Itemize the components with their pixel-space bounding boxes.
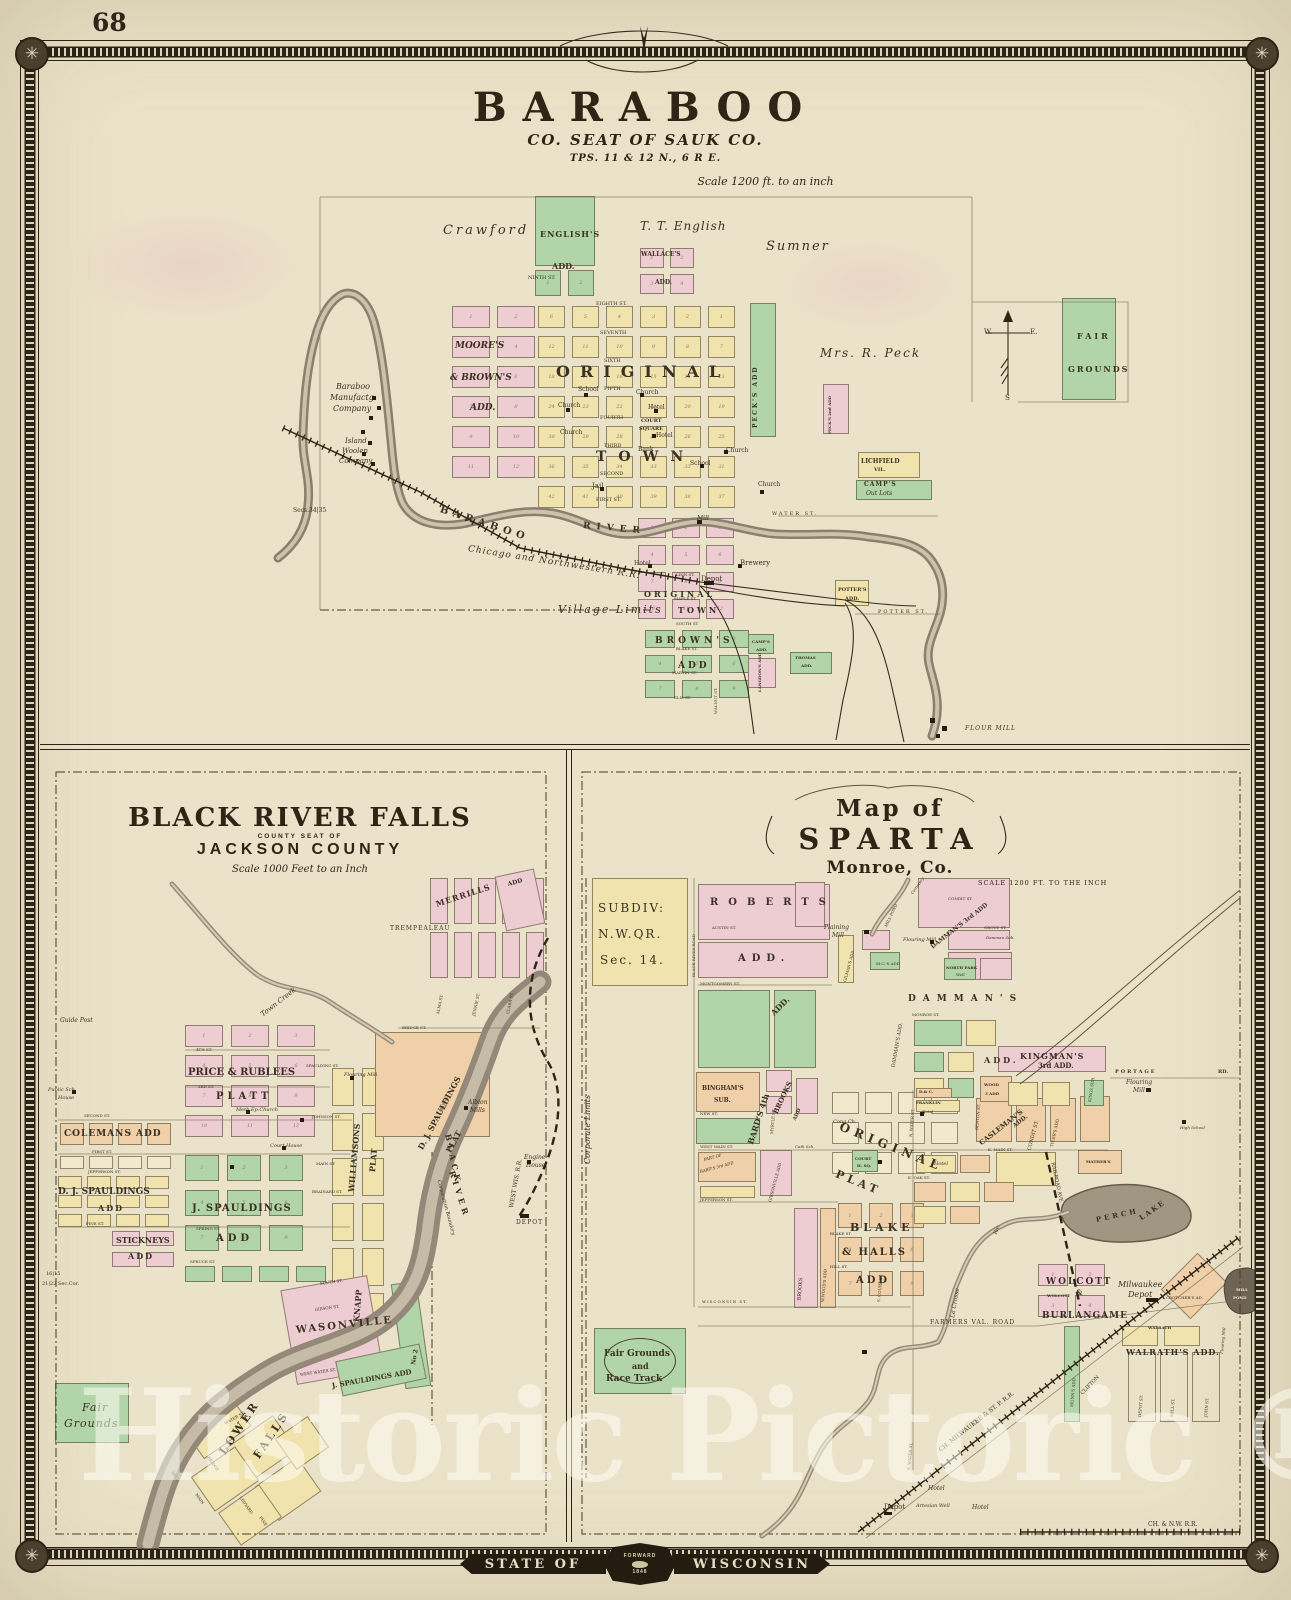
frame-band-right	[1256, 48, 1264, 1558]
corner-rosette-icon: ✳	[15, 1539, 49, 1573]
emblem-motto: FORWARD	[624, 1553, 657, 1559]
frame-inner-rule	[38, 60, 1252, 1548]
corner-rosette-icon: ✳	[15, 37, 49, 71]
banner-text-right: WISCONSIN	[693, 1557, 811, 1572]
frame-band-left	[26, 48, 34, 1558]
panel-divider-vertical	[566, 750, 572, 1542]
banner-ribbon-left: STATE OF	[460, 1554, 606, 1574]
corner-rosette-icon: ✳	[1245, 37, 1279, 71]
badger-icon	[632, 1561, 648, 1568]
atlas-sheet: 68 ✳ ✳ ✳ ✳ 65432112111098718171615141324…	[0, 0, 1291, 1600]
panel-divider-horizontal	[40, 744, 1250, 750]
state-banner: STATE OF FORWARD 1848 WISCONSIN	[452, 1543, 838, 1585]
emblem-year: 1848	[632, 1569, 647, 1575]
banner-ribbon-right: WISCONSIN	[674, 1554, 830, 1574]
banner-text-left: STATE OF	[485, 1557, 581, 1572]
corner-rosette-icon: ✳	[1245, 1539, 1279, 1573]
wisconsin-emblem-icon: FORWARD 1848	[604, 1543, 676, 1585]
page-number: 68	[92, 8, 127, 37]
frame-band-top	[26, 48, 1264, 56]
